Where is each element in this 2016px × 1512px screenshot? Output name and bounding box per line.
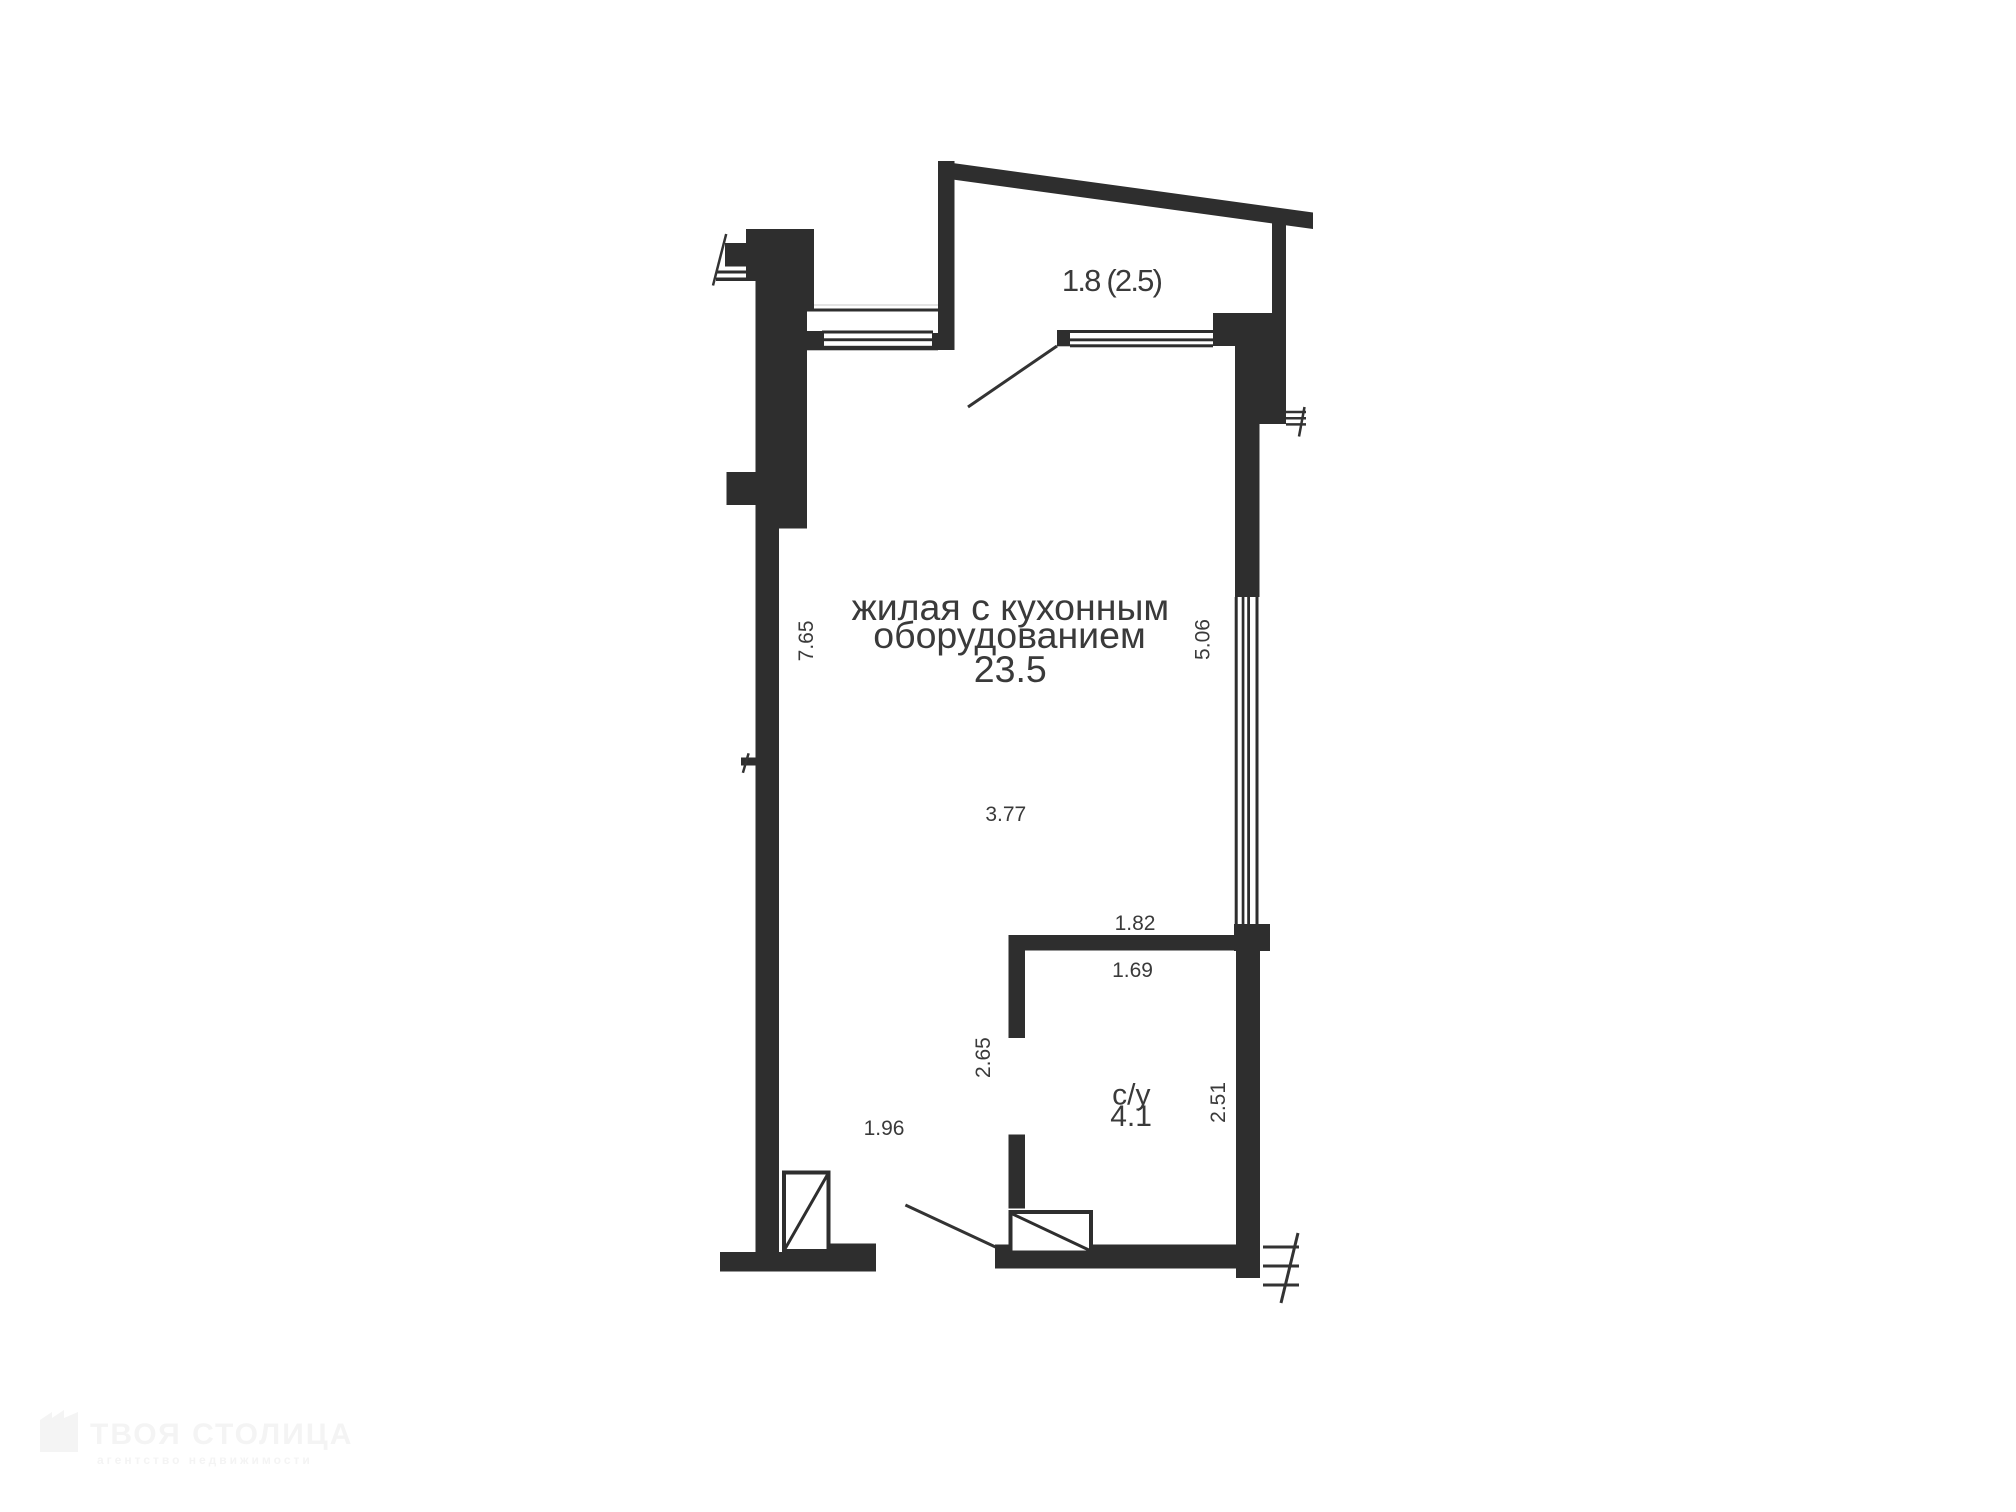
svg-text:1.82: 1.82 <box>1115 912 1156 935</box>
svg-text:2.65: 2.65 <box>972 1037 995 1078</box>
svg-text:3.77: 3.77 <box>985 803 1026 826</box>
svg-text:агентство недвижимости: агентство недвижимости <box>97 1453 313 1467</box>
svg-text:5.06: 5.06 <box>1192 619 1215 660</box>
svg-text:23.5: 23.5 <box>974 648 1047 690</box>
svg-text:4.1: 4.1 <box>1110 1100 1152 1133</box>
svg-text:1.96: 1.96 <box>864 1117 905 1140</box>
svg-text:7.65: 7.65 <box>795 620 818 661</box>
svg-text:1.8 (2.5): 1.8 (2.5) <box>1062 263 1162 298</box>
svg-text:2.51: 2.51 <box>1207 1082 1230 1123</box>
svg-text:1.69: 1.69 <box>1112 959 1153 982</box>
svg-text:ТВОЯ СТОЛИЦА: ТВОЯ СТОЛИЦА <box>90 1418 353 1451</box>
